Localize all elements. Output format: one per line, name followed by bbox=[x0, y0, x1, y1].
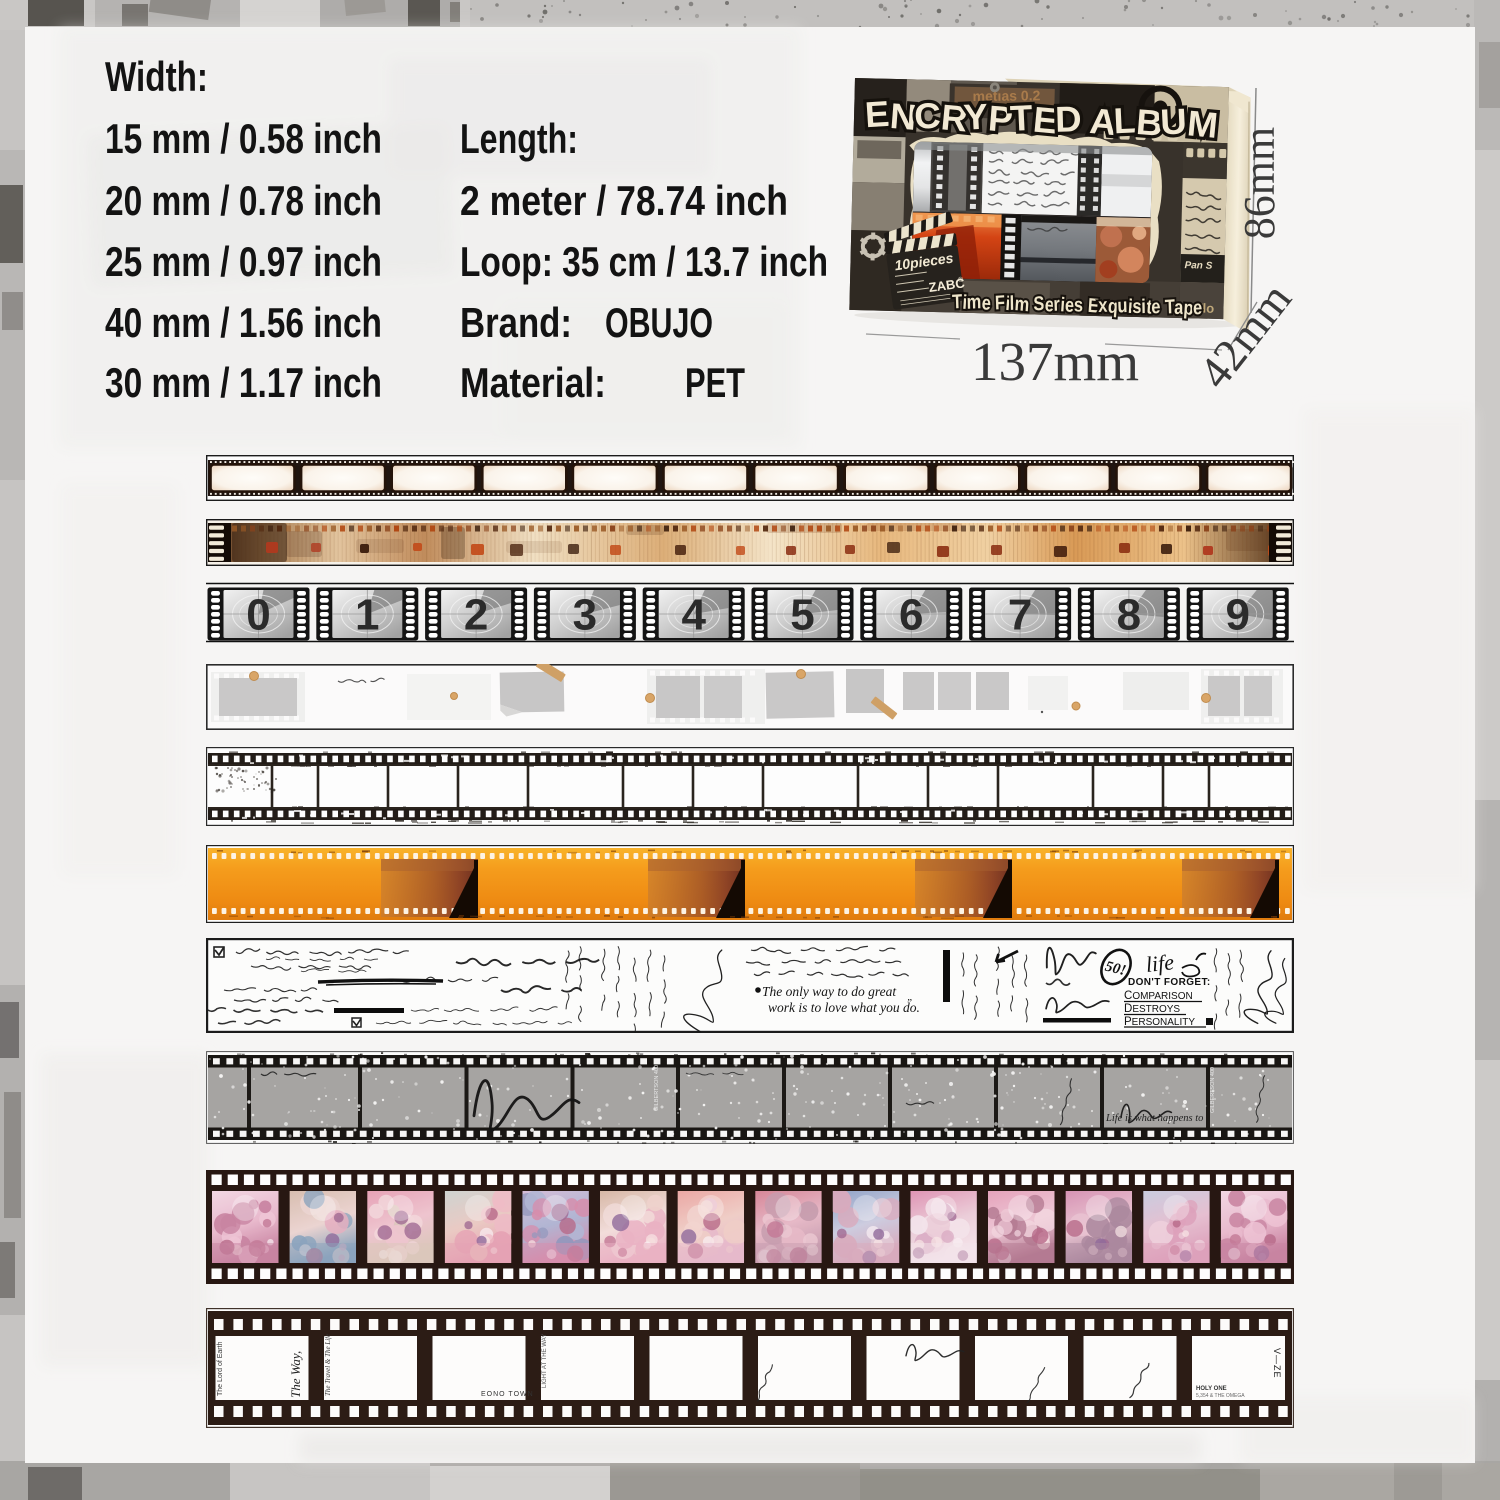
svg-text:work is to love what you do.: work is to love what you do. bbox=[768, 1000, 920, 1015]
svg-text:LIGHT AT THE WAY: LIGHT AT THE WAY bbox=[542, 1334, 548, 1388]
svg-text:life: life bbox=[1144, 949, 1175, 977]
svg-text:Loop: 35 cm / 13.7 inch: Loop: 35 cm / 13.7 inch bbox=[460, 238, 828, 285]
svg-text:3: 3 bbox=[573, 591, 597, 640]
svg-text:8: 8 bbox=[1117, 591, 1141, 640]
svg-text:6: 6 bbox=[899, 591, 923, 640]
svg-text:PERSONALITY: PERSONALITY bbox=[1124, 1016, 1195, 1028]
svg-text:4: 4 bbox=[681, 591, 706, 640]
svg-text:PET: PET bbox=[685, 359, 745, 406]
svg-text:Length:: Length: bbox=[460, 115, 578, 162]
svg-text:0: 0 bbox=[246, 591, 270, 640]
svg-text:EONO TOWN: EONO TOWN bbox=[481, 1391, 534, 1398]
svg-text:”: ” bbox=[906, 997, 912, 1009]
svg-text:Width:: Width: bbox=[105, 53, 208, 100]
svg-text:9: 9 bbox=[1225, 591, 1249, 640]
svg-text:Material:: Material: bbox=[460, 359, 606, 406]
svg-text:137mm: 137mm bbox=[971, 331, 1139, 392]
svg-text:The Travel & The Life: The Travel & The Life bbox=[324, 1334, 332, 1396]
svg-text:20 mm / 0.78 inch: 20 mm / 0.78 inch bbox=[105, 177, 382, 224]
svg-text:25 mm / 0.97 inch: 25 mm / 0.97 inch bbox=[105, 238, 382, 285]
svg-text:OBUJO: OBUJO bbox=[605, 299, 713, 346]
svg-text:15 mm / 0.58 inch: 15 mm / 0.58 inch bbox=[105, 115, 382, 162]
svg-text:DON'T FORGET:: DON'T FORGET: bbox=[1128, 977, 1211, 988]
svg-text:The Lord of Earth: The Lord of Earth bbox=[217, 1341, 224, 1396]
svg-text:COMPARISON: COMPARISON bbox=[1124, 990, 1193, 1002]
svg-text:HOLY ONE: HOLY ONE bbox=[1196, 1386, 1227, 1392]
svg-text:V—ZE: V—ZE bbox=[1272, 1348, 1282, 1379]
svg-text:7: 7 bbox=[1008, 591, 1032, 640]
svg-text:5,354 & THE OMEGA: 5,354 & THE OMEGA bbox=[1196, 1393, 1245, 1399]
svg-text:40 mm / 1.56 inch: 40 mm / 1.56 inch bbox=[105, 299, 382, 346]
svg-text:30 mm / 1.17 inch: 30 mm / 1.17 inch bbox=[105, 359, 382, 406]
svg-text:Pan S: Pan S bbox=[1184, 260, 1212, 272]
svg-text:The only way to do great: The only way to do great bbox=[762, 984, 897, 999]
svg-text:86mm: 86mm bbox=[1235, 127, 1284, 239]
svg-text:GILBERTSON 400: GILBERTSON 400 bbox=[1210, 1067, 1216, 1113]
svg-text:GILBERTSON 400: GILBERTSON 400 bbox=[654, 1065, 660, 1111]
svg-text:DESTROYS: DESTROYS bbox=[1124, 1003, 1180, 1015]
svg-text:Life is what happens to: Life is what happens to bbox=[1105, 1113, 1203, 1124]
svg-text:The Way,: The Way, bbox=[288, 1351, 303, 1398]
svg-text:Brand:: Brand: bbox=[460, 299, 572, 346]
svg-text:5: 5 bbox=[790, 591, 814, 640]
svg-text:1: 1 bbox=[355, 591, 379, 640]
svg-text:2 meter / 78.74 inch: 2 meter / 78.74 inch bbox=[460, 177, 788, 224]
svg-text:2: 2 bbox=[464, 591, 488, 640]
